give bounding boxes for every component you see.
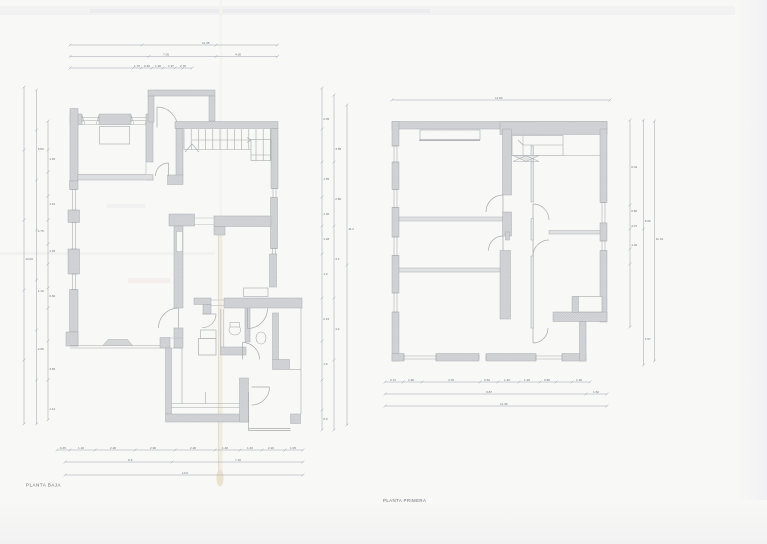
svg-text:0.80: 0.80 [631, 209, 637, 213]
svg-text:2.20: 2.20 [190, 446, 196, 450]
svg-text:1.97: 1.97 [168, 64, 174, 68]
svg-text:6.32: 6.32 [631, 165, 637, 169]
svg-text:1.90: 1.90 [155, 64, 161, 68]
svg-text:1.05: 1.05 [290, 446, 296, 450]
svg-text:1.40: 1.40 [247, 446, 253, 450]
svg-text:1.45: 1.45 [49, 157, 55, 161]
svg-text:PLANTA BAJA: PLANTA BAJA [26, 483, 61, 488]
svg-text:1.45: 1.45 [49, 249, 55, 253]
svg-text:11.39: 11.39 [500, 402, 508, 406]
svg-text:0.80: 0.80 [544, 378, 550, 382]
svg-text:11.31: 11.31 [656, 237, 664, 241]
svg-text:5.80: 5.80 [38, 147, 44, 151]
svg-text:1.9: 1.9 [323, 272, 328, 276]
svg-text:1.90: 1.90 [408, 378, 414, 382]
svg-text:1.10: 1.10 [78, 446, 84, 450]
svg-text:0.60: 0.60 [49, 294, 55, 298]
svg-text:1.61: 1.61 [49, 202, 55, 206]
svg-text:2.75: 2.75 [180, 64, 186, 68]
svg-text:0.72: 0.72 [390, 378, 396, 382]
svg-text:0.60: 0.60 [144, 64, 150, 68]
svg-text:7.05: 7.05 [163, 52, 169, 56]
svg-text:3.55: 3.55 [335, 147, 341, 151]
svg-text:3.07: 3.07 [631, 224, 637, 228]
svg-text:4.30: 4.30 [235, 52, 241, 56]
svg-text:1.30: 1.30 [576, 378, 582, 382]
svg-text:2.20: 2.20 [110, 446, 116, 450]
svg-text:13.60: 13.60 [25, 257, 33, 261]
svg-text:0.45: 0.45 [60, 446, 66, 450]
svg-text:11.60: 11.60 [495, 96, 503, 100]
svg-text:1.52: 1.52 [593, 390, 599, 394]
svg-text:2.95: 2.95 [38, 347, 44, 351]
svg-text:2.80: 2.80 [335, 197, 341, 201]
svg-text:1.28: 1.28 [323, 237, 329, 241]
svg-text:5.06: 5.06 [645, 219, 651, 223]
svg-text:4.2: 4.2 [335, 327, 340, 331]
svg-text:2.90: 2.90 [150, 446, 156, 450]
svg-text:3.65: 3.65 [49, 367, 55, 371]
svg-text:9.87: 9.87 [486, 390, 492, 394]
svg-text:0.62: 0.62 [484, 378, 490, 382]
svg-text:2.05: 2.05 [323, 117, 329, 121]
svg-text:13.6: 13.6 [182, 471, 188, 475]
svg-text:0.9: 0.9 [323, 417, 328, 421]
svg-text:1.55: 1.55 [323, 177, 329, 181]
svg-text:1.8: 1.8 [323, 362, 328, 366]
svg-text:1.57: 1.57 [645, 337, 651, 341]
svg-text:1.12: 1.12 [49, 407, 55, 411]
svg-text:11.2: 11.2 [348, 227, 354, 231]
svg-text:1.10: 1.10 [38, 289, 44, 293]
svg-text:1.40: 1.40 [504, 378, 510, 382]
svg-text:2.15: 2.15 [323, 317, 329, 321]
svg-text:1.30: 1.30 [323, 212, 329, 216]
svg-text:3.2: 3.2 [335, 257, 340, 261]
svg-text:PLANTA PRIMERA: PLANTA PRIMERA [383, 498, 426, 503]
svg-text:7.10: 7.10 [235, 458, 241, 462]
svg-text:4.75: 4.75 [38, 229, 44, 233]
svg-text:11.35: 11.35 [202, 41, 210, 45]
svg-text:2.20: 2.20 [268, 446, 274, 450]
svg-text:1.20: 1.20 [524, 378, 530, 382]
svg-text:1.70: 1.70 [134, 64, 140, 68]
svg-text:1.30: 1.30 [631, 243, 637, 247]
svg-text:4.76: 4.76 [448, 378, 454, 382]
svg-text:1.40: 1.40 [222, 446, 228, 450]
svg-text:6.9: 6.9 [128, 458, 133, 462]
